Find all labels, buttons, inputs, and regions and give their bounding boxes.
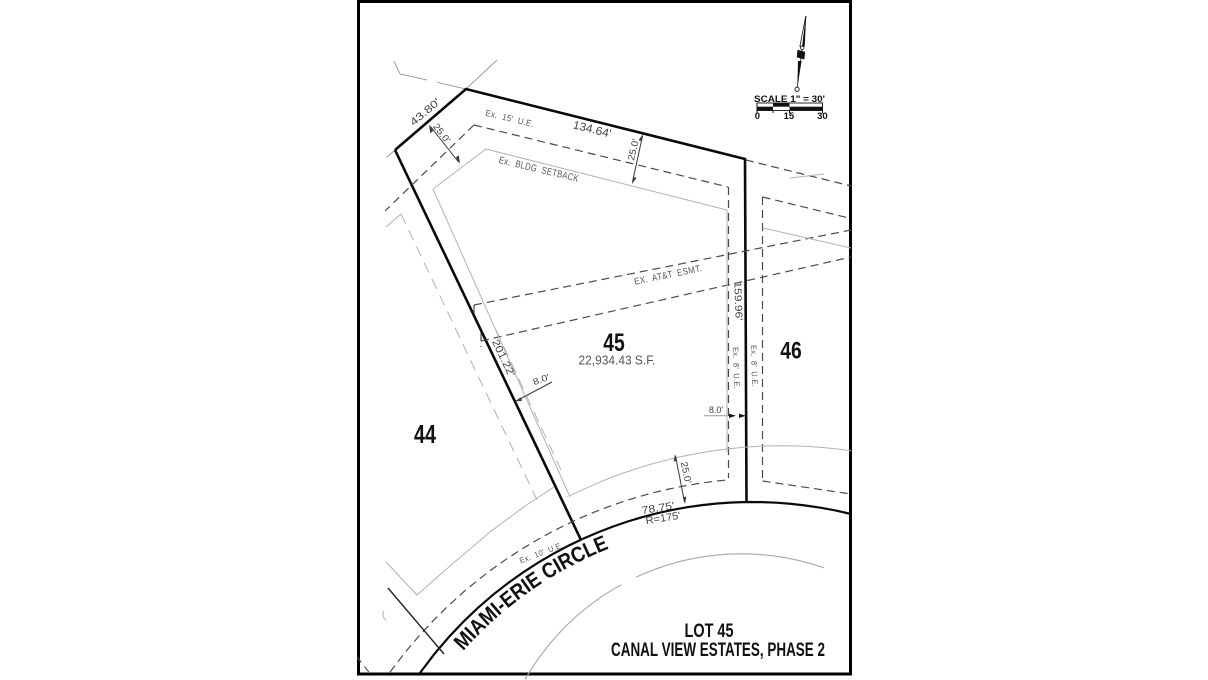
- svg-text:CANAL VIEW ESTATES, PHASE 2: CANAL VIEW ESTATES, PHASE 2: [611, 639, 825, 661]
- svg-text:159.96': 159.96': [731, 281, 743, 320]
- svg-text:8.0': 8.0': [709, 405, 724, 415]
- svg-text:15: 15: [784, 111, 795, 122]
- svg-text:46: 46: [780, 338, 802, 365]
- svg-text:0: 0: [755, 111, 760, 122]
- svg-text:Ex. 8' U.E.: Ex. 8' U.E.: [749, 345, 759, 387]
- svg-text:22,934.43 S.F.: 22,934.43 S.F.: [579, 354, 656, 368]
- svg-text:30: 30: [817, 111, 828, 122]
- svg-text:Ex. 8' U.E.: Ex. 8' U.E.: [731, 347, 741, 389]
- svg-text:44: 44: [414, 421, 437, 449]
